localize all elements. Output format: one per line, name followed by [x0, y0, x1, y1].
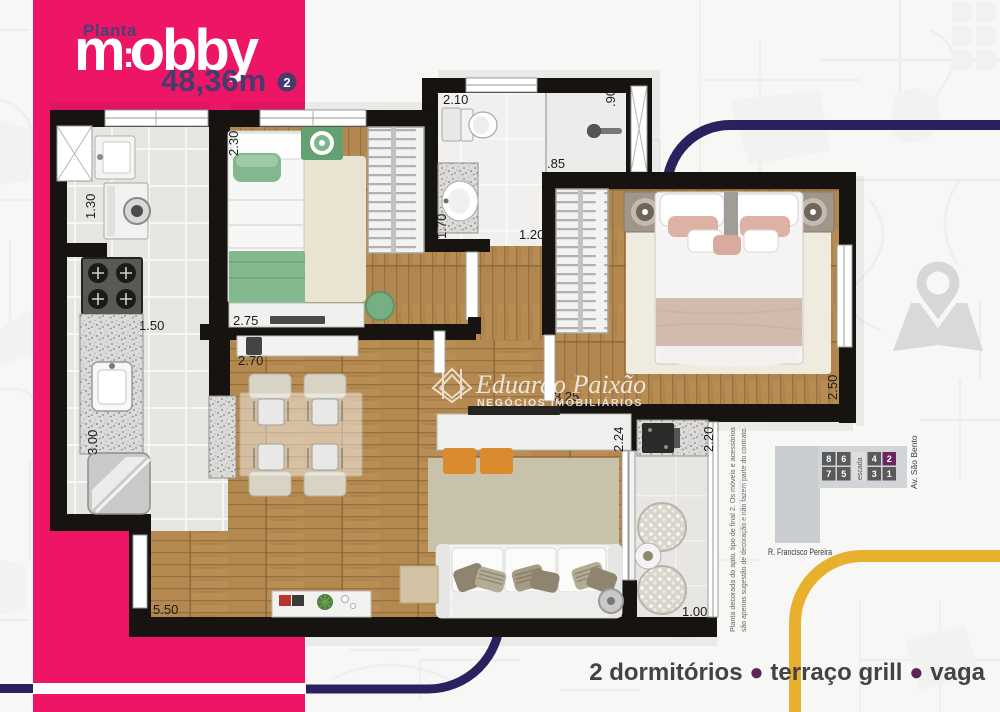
svg-text:4: 4: [872, 454, 877, 464]
svg-text:Eduardo Paixão: Eduardo Paixão: [475, 370, 646, 399]
svg-text:2: 2: [887, 454, 892, 464]
svg-text:escada: escada: [857, 457, 864, 480]
svg-text:7: 7: [826, 469, 831, 479]
svg-text:1.50: 1.50: [139, 318, 164, 333]
svg-text:2.75: 2.75: [233, 313, 258, 328]
svg-text:1.30: 1.30: [83, 194, 98, 219]
svg-text:são apenas sugestão de decoraç: são apenas sugestão de decoração e não f…: [739, 427, 748, 632]
svg-text:2.24: 2.24: [611, 427, 626, 452]
svg-text:1.00: 1.00: [682, 604, 707, 619]
svg-text:2.50: 2.50: [825, 375, 840, 400]
svg-text:2: 2: [283, 75, 290, 90]
svg-text:NEGÓCIOS IMOBILIÁRIOS: NEGÓCIOS IMOBILIÁRIOS: [477, 396, 643, 409]
svg-text:1: 1: [887, 469, 892, 479]
svg-text:2.10: 2.10: [443, 92, 468, 107]
svg-text:3: 3: [872, 469, 877, 479]
svg-text:8: 8: [826, 454, 831, 464]
svg-text:Av. São Bento: Av. São Bento: [909, 435, 919, 489]
svg-text:1.70: 1.70: [434, 214, 449, 239]
svg-text:5: 5: [841, 469, 846, 479]
svg-text:48,36m: 48,36m: [161, 63, 266, 98]
svg-text:2.20: 2.20: [701, 427, 716, 452]
svg-text:2.30: 2.30: [226, 131, 241, 156]
svg-text:1.20: 1.20: [519, 227, 544, 242]
svg-text:.90: .90: [603, 89, 618, 107]
svg-text:.85: .85: [547, 156, 565, 171]
svg-text:Planta decorada do apto. tipo: Planta decorada do apto. tipo de final 2…: [728, 427, 737, 632]
svg-text:2.70: 2.70: [238, 353, 263, 368]
svg-text:3.00: 3.00: [85, 430, 100, 455]
svg-text:R. Francisco Pereira: R. Francisco Pereira: [768, 547, 832, 557]
svg-text:2 dormitórios ● terraço grill: 2 dormitórios ● terraço grill ● vaga: [589, 659, 985, 686]
svg-text:6: 6: [841, 454, 846, 464]
svg-text:5.50: 5.50: [153, 602, 178, 617]
